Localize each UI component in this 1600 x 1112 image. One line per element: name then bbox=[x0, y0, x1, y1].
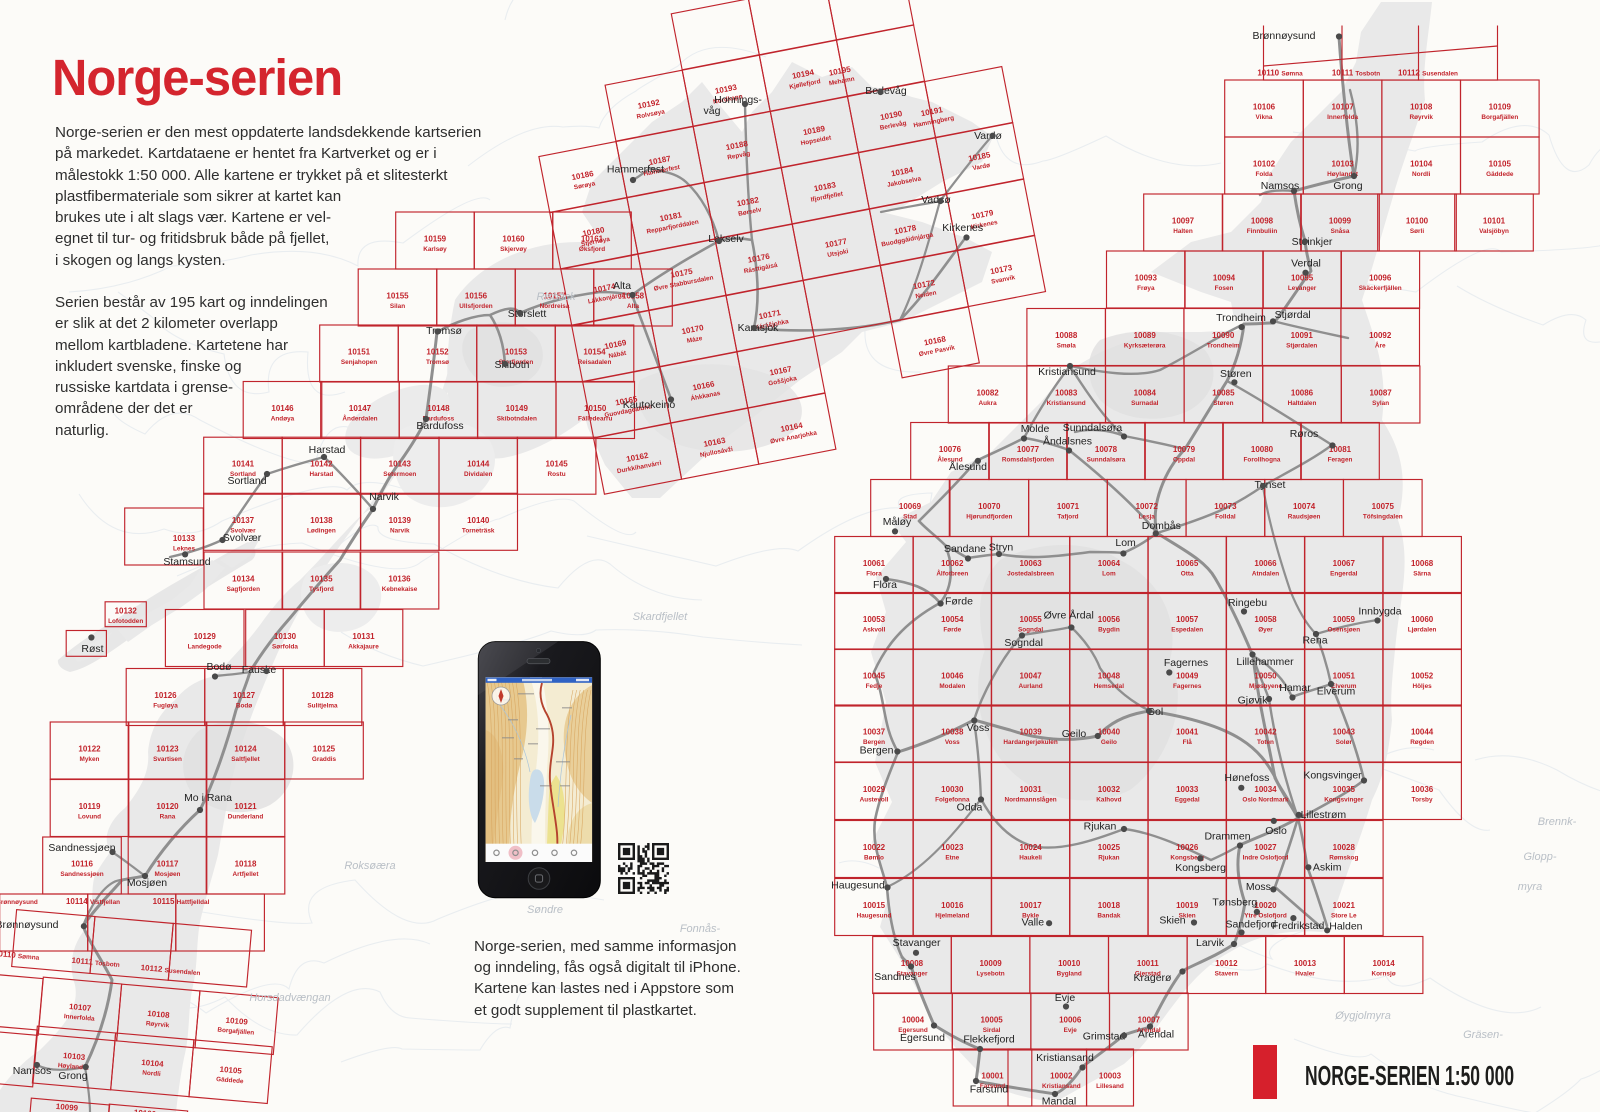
svg-text:Tynset: Tynset bbox=[1255, 479, 1286, 491]
svg-text:Stamsund: Stamsund bbox=[163, 556, 210, 568]
svg-text:10001: 10001 bbox=[981, 1072, 1004, 1081]
svg-text:Myken: Myken bbox=[80, 756, 100, 763]
svg-text:Rana: Rana bbox=[160, 814, 176, 821]
svg-text:10056: 10056 bbox=[1098, 615, 1121, 624]
svg-text:10111 Tosbotn: 10111 Tosbotn bbox=[1332, 69, 1380, 78]
svg-text:10133: 10133 bbox=[173, 534, 196, 543]
svg-text:10067: 10067 bbox=[1333, 559, 1356, 568]
svg-text:10130: 10130 bbox=[274, 632, 297, 641]
svg-text:10078: 10078 bbox=[1095, 445, 1118, 454]
svg-text:10105: 10105 bbox=[1489, 160, 1512, 169]
svg-text:Sørli: Sørli bbox=[1410, 228, 1424, 235]
svg-text:10118: 10118 bbox=[235, 860, 257, 869]
svg-text:Store Le: Store Le bbox=[1331, 913, 1357, 920]
svg-text:Lovund: Lovund bbox=[78, 814, 101, 821]
svg-text:Evje: Evje bbox=[1064, 1027, 1078, 1034]
svg-text:10040: 10040 bbox=[1098, 728, 1121, 737]
svg-text:Glopp-: Glopp- bbox=[1523, 851, 1556, 863]
svg-text:Flå: Flå bbox=[1183, 738, 1193, 746]
svg-text:10090: 10090 bbox=[1212, 331, 1235, 340]
svg-text:10120: 10120 bbox=[156, 802, 179, 811]
svg-text:Åre: Åre bbox=[1375, 341, 1386, 350]
svg-text:Fonnås-: Fonnås- bbox=[680, 923, 721, 935]
svg-text:10154: 10154 bbox=[583, 348, 606, 357]
svg-text:10069: 10069 bbox=[899, 502, 922, 511]
svg-text:10012: 10012 bbox=[1215, 959, 1238, 968]
svg-text:Jostedalsbreen: Jostedalsbreen bbox=[1007, 571, 1054, 578]
svg-text:10134: 10134 bbox=[232, 575, 255, 584]
svg-text:Innerfolda: Innerfolda bbox=[1327, 114, 1358, 121]
svg-text:Etne: Etne bbox=[945, 855, 959, 862]
svg-text:10099: 10099 bbox=[1329, 217, 1352, 226]
svg-text:Kirkenes: Kirkenes bbox=[942, 222, 983, 234]
svg-text:Skardfjellet: Skardfjellet bbox=[633, 611, 688, 623]
svg-text:Svolvær: Svolvær bbox=[223, 532, 262, 544]
svg-text:Molde: Molde bbox=[1021, 423, 1050, 435]
svg-text:Sogndal: Sogndal bbox=[1004, 637, 1043, 649]
svg-text:Farsund: Farsund bbox=[970, 1084, 1009, 1096]
svg-text:Søndre: Søndre bbox=[527, 904, 563, 916]
svg-text:10094: 10094 bbox=[1213, 274, 1236, 283]
svg-text:Fedje: Fedje bbox=[866, 683, 883, 690]
svg-text:Smøla: Smøla bbox=[1057, 343, 1077, 350]
svg-text:Larvik: Larvik bbox=[1196, 937, 1225, 949]
svg-text:10004: 10004 bbox=[902, 1016, 925, 1025]
svg-text:10156: 10156 bbox=[465, 292, 488, 301]
svg-text:Lom: Lom bbox=[1102, 571, 1116, 578]
svg-text:10132: 10132 bbox=[115, 607, 138, 616]
svg-text:10062: 10062 bbox=[941, 559, 964, 568]
svg-text:10007: 10007 bbox=[1138, 1016, 1161, 1025]
svg-text:10095: 10095 bbox=[1291, 274, 1314, 283]
svg-text:Askim: Askim bbox=[1313, 862, 1342, 874]
svg-text:Mo i Rana: Mo i Rana bbox=[184, 792, 232, 804]
svg-text:10083: 10083 bbox=[1055, 389, 1078, 398]
svg-text:Indre Oslofjord: Indre Oslofjord bbox=[1243, 855, 1289, 862]
svg-text:10060: 10060 bbox=[1411, 615, 1434, 624]
svg-text:Egersund: Egersund bbox=[900, 1032, 945, 1044]
svg-text:Mandal: Mandal bbox=[1042, 1096, 1076, 1108]
svg-text:Nordmannslågen: Nordmannslågen bbox=[1004, 796, 1056, 804]
svg-text:Grimstad: Grimstad bbox=[1083, 1031, 1126, 1043]
svg-text:10093: 10093 bbox=[1135, 274, 1158, 283]
svg-text:10131: 10131 bbox=[352, 632, 375, 641]
svg-text:10082: 10082 bbox=[976, 389, 999, 398]
svg-text:10127: 10127 bbox=[233, 691, 256, 700]
svg-text:Voss: Voss bbox=[945, 739, 960, 746]
svg-text:Hvaler: Hvaler bbox=[1295, 971, 1315, 978]
svg-text:10144: 10144 bbox=[467, 460, 490, 469]
svg-text:Førde: Førde bbox=[945, 596, 973, 608]
svg-text:10091: 10091 bbox=[1291, 331, 1314, 340]
svg-text:10006: 10006 bbox=[1059, 1016, 1082, 1025]
svg-text:Fugløya: Fugløya bbox=[153, 703, 178, 710]
svg-text:Sylan: Sylan bbox=[1372, 400, 1389, 407]
svg-text:10110 Sømna: 10110 Sømna bbox=[1257, 69, 1303, 78]
svg-text:Kristiansand: Kristiansand bbox=[1042, 1083, 1081, 1090]
svg-text:Sulitjelma: Sulitjelma bbox=[307, 703, 338, 710]
svg-text:Gräsen-: Gräsen- bbox=[1463, 1029, 1503, 1041]
svg-text:Hardangerjøkulen: Hardangerjøkulen bbox=[1003, 739, 1057, 746]
svg-text:10013: 10013 bbox=[1294, 959, 1317, 968]
svg-text:Surnadal: Surnadal bbox=[1131, 400, 1159, 407]
svg-text:10017: 10017 bbox=[1019, 901, 1042, 910]
svg-text:Gjøvik: Gjøvik bbox=[1238, 695, 1268, 707]
svg-text:Toten: Toten bbox=[1257, 739, 1274, 746]
svg-text:Ljørdalen: Ljørdalen bbox=[1408, 627, 1437, 634]
svg-text:10018: 10018 bbox=[1098, 901, 1121, 910]
svg-text:Austevoll: Austevoll bbox=[860, 797, 889, 804]
svg-text:Kristiansund: Kristiansund bbox=[1047, 400, 1086, 407]
svg-text:10102: 10102 bbox=[1253, 160, 1276, 169]
svg-text:Trondheim: Trondheim bbox=[1216, 312, 1266, 324]
svg-text:Sandnessjøen: Sandnessjøen bbox=[60, 871, 103, 878]
svg-text:10149: 10149 bbox=[506, 404, 529, 413]
svg-text:10059: 10059 bbox=[1333, 615, 1356, 624]
svg-text:Folldal: Folldal bbox=[1215, 514, 1236, 521]
svg-text:Mjøsbyene: Mjøsbyene bbox=[1249, 683, 1282, 690]
svg-text:Steinkjer: Steinkjer bbox=[1292, 236, 1333, 248]
svg-text:Storslett: Storslett bbox=[508, 308, 547, 320]
svg-text:Bygdin: Bygdin bbox=[1098, 627, 1120, 634]
svg-text:Sunndalsøra: Sunndalsøra bbox=[1063, 422, 1123, 434]
svg-text:Harstad: Harstad bbox=[309, 444, 346, 456]
svg-text:Hammerfest: Hammerfest bbox=[607, 164, 664, 176]
svg-text:Fagernes: Fagernes bbox=[1173, 683, 1202, 690]
svg-text:10015: 10015 bbox=[863, 901, 886, 910]
svg-text:Brennk-: Brennk- bbox=[1538, 816, 1577, 828]
svg-text:10124: 10124 bbox=[234, 745, 257, 754]
svg-text:10103: 10103 bbox=[1331, 160, 1354, 169]
svg-text:Odda: Odda bbox=[957, 802, 983, 814]
svg-text:Dombås: Dombås bbox=[1142, 520, 1181, 532]
svg-text:10109: 10109 bbox=[225, 1016, 248, 1027]
svg-text:Flekkefjord: Flekkefjord bbox=[963, 1034, 1015, 1046]
svg-text:10047: 10047 bbox=[1019, 672, 1042, 681]
svg-text:Fosen: Fosen bbox=[1215, 285, 1234, 292]
svg-text:Fauske: Fauske bbox=[242, 664, 277, 676]
svg-text:10053: 10053 bbox=[863, 615, 886, 624]
svg-text:10135: 10135 bbox=[310, 575, 333, 584]
svg-text:Otta: Otta bbox=[1181, 571, 1194, 578]
svg-text:10115 Hattfjelldal: 10115 Hattfjelldal bbox=[153, 897, 210, 906]
svg-text:Ringebu: Ringebu bbox=[1228, 597, 1267, 609]
svg-text:10121: 10121 bbox=[234, 802, 257, 811]
svg-text:10023: 10023 bbox=[941, 843, 964, 852]
svg-text:Haltdalen: Haltdalen bbox=[1288, 400, 1317, 407]
svg-text:Oppdal: Oppdal bbox=[1173, 457, 1195, 464]
svg-text:10141: 10141 bbox=[232, 460, 255, 469]
svg-text:Grong: Grong bbox=[1333, 180, 1362, 192]
svg-text:Landegode: Landegode bbox=[188, 644, 223, 651]
svg-text:Bygland: Bygland bbox=[1057, 971, 1082, 978]
svg-text:Stavanger: Stavanger bbox=[893, 937, 941, 949]
svg-text:Rømskog: Rømskog bbox=[1329, 855, 1358, 862]
svg-text:10038: 10038 bbox=[941, 728, 964, 737]
svg-text:Bømlo: Bømlo bbox=[864, 855, 884, 862]
svg-text:10048: 10048 bbox=[1098, 672, 1121, 681]
svg-text:Fagernes: Fagernes bbox=[1164, 657, 1208, 669]
svg-text:Silan: Silan bbox=[390, 303, 405, 310]
svg-text:10071: 10071 bbox=[1057, 502, 1080, 511]
svg-text:Kongsvinger: Kongsvinger bbox=[1303, 770, 1362, 782]
svg-text:10052: 10052 bbox=[1411, 672, 1434, 681]
svg-text:10041: 10041 bbox=[1176, 728, 1199, 737]
svg-text:10136: 10136 bbox=[388, 575, 411, 584]
svg-text:Engerdal: Engerdal bbox=[1330, 571, 1358, 578]
svg-text:Ålesund: Ålesund bbox=[949, 460, 987, 473]
svg-text:10099: 10099 bbox=[55, 1102, 78, 1112]
svg-text:Stjørdalen: Stjørdalen bbox=[1286, 343, 1317, 350]
svg-text:Borgafjällen: Borgafjällen bbox=[1481, 114, 1518, 121]
svg-text:10064: 10064 bbox=[1098, 559, 1121, 568]
svg-text:Rjukan: Rjukan bbox=[1084, 821, 1117, 833]
svg-text:10049: 10049 bbox=[1176, 672, 1199, 681]
svg-text:10074: 10074 bbox=[1293, 502, 1316, 511]
svg-text:Tysfjord: Tysfjord bbox=[309, 586, 334, 593]
svg-text:Vardø: Vardø bbox=[974, 130, 1002, 142]
svg-text:10050: 10050 bbox=[1254, 672, 1277, 681]
svg-text:Romsdalsfjorden: Romsdalsfjorden bbox=[1002, 457, 1054, 464]
svg-text:Drammen: Drammen bbox=[1204, 831, 1250, 843]
svg-text:Bergen: Bergen bbox=[860, 745, 894, 757]
svg-text:10073: 10073 bbox=[1214, 502, 1237, 511]
svg-text:Flora: Flora bbox=[866, 571, 882, 578]
svg-text:Skibotn: Skibotn bbox=[494, 359, 529, 371]
svg-text:Risbäck: Risbäck bbox=[536, 291, 576, 303]
svg-text:Ånderdalen: Ånderdalen bbox=[342, 414, 377, 423]
svg-text:Geilo: Geilo bbox=[1062, 728, 1087, 740]
svg-text:Honnings-: Honnings- bbox=[714, 94, 762, 106]
svg-text:Elverum: Elverum bbox=[1317, 686, 1356, 698]
svg-text:10014: 10014 bbox=[1372, 959, 1395, 968]
svg-text:10016: 10016 bbox=[941, 901, 964, 910]
svg-text:Borgafjällen: Borgafjällen bbox=[217, 1027, 254, 1037]
svg-text:Lødingen: Lødingen bbox=[307, 527, 336, 534]
svg-text:10068: 10068 bbox=[1411, 559, 1434, 568]
svg-text:10028: 10028 bbox=[1333, 843, 1356, 852]
svg-text:Rjukan: Rjukan bbox=[1098, 855, 1119, 862]
svg-text:Røros: Røros bbox=[1290, 428, 1319, 440]
svg-text:10101: 10101 bbox=[1483, 217, 1506, 226]
svg-text:10072: 10072 bbox=[1136, 502, 1159, 511]
svg-text:10143: 10143 bbox=[389, 460, 412, 469]
svg-text:10058: 10058 bbox=[1254, 615, 1277, 624]
svg-text:10129: 10129 bbox=[194, 632, 217, 641]
svg-text:Valsjöbyn: Valsjöbyn bbox=[1479, 228, 1509, 235]
svg-text:Øygjolmyra: Øygjolmyra bbox=[1334, 1010, 1391, 1022]
svg-text:10153: 10153 bbox=[505, 348, 528, 357]
svg-text:Haugesund: Haugesund bbox=[857, 913, 892, 920]
svg-text:myra: myra bbox=[1518, 881, 1542, 893]
svg-text:10076: 10076 bbox=[939, 445, 962, 454]
svg-text:Feragen: Feragen bbox=[1328, 457, 1353, 464]
svg-text:Torneträsk: Torneträsk bbox=[462, 527, 495, 534]
svg-text:Finnbuliin: Finnbuliin bbox=[1247, 228, 1278, 235]
svg-text:Levanger: Levanger bbox=[1288, 285, 1317, 292]
svg-text:Kyrksæterøra: Kyrksæterøra bbox=[1124, 343, 1166, 350]
svg-text:10051: 10051 bbox=[1333, 672, 1356, 681]
svg-text:10126: 10126 bbox=[154, 691, 177, 700]
svg-text:10096: 10096 bbox=[1369, 274, 1392, 283]
svg-text:Forollhogna: Forollhogna bbox=[1244, 457, 1281, 464]
svg-text:10084: 10084 bbox=[1134, 389, 1157, 398]
svg-text:Åndalsnes: Åndalsnes bbox=[1043, 435, 1092, 448]
svg-text:10122: 10122 bbox=[78, 745, 101, 754]
svg-text:Kongsberg: Kongsberg bbox=[1175, 862, 1226, 874]
svg-text:Kalhovd: Kalhovd bbox=[1096, 797, 1121, 804]
svg-text:Narvik: Narvik bbox=[390, 527, 410, 534]
svg-text:10077: 10077 bbox=[1017, 445, 1040, 454]
svg-text:Svartisen: Svartisen bbox=[153, 756, 182, 763]
svg-text:Røst: Røst bbox=[81, 643, 103, 655]
svg-text:Trondheim: Trondheim bbox=[1207, 343, 1240, 350]
svg-text:10030: 10030 bbox=[941, 785, 964, 794]
svg-text:10054: 10054 bbox=[941, 615, 964, 624]
svg-text:10137: 10137 bbox=[232, 516, 255, 525]
svg-text:Stavern: Stavern bbox=[1215, 971, 1239, 978]
svg-text:10026: 10026 bbox=[1176, 843, 1199, 852]
svg-text:10152: 10152 bbox=[426, 348, 449, 357]
svg-text:Haugesund: Haugesund bbox=[831, 880, 885, 892]
svg-text:10034: 10034 bbox=[1254, 785, 1277, 794]
svg-text:10065: 10065 bbox=[1176, 559, 1199, 568]
svg-text:10045: 10045 bbox=[863, 672, 886, 681]
svg-text:Solør: Solør bbox=[1336, 739, 1353, 746]
svg-text:10113 Brønnøysund: 10113 Brønnøysund bbox=[0, 897, 38, 906]
svg-text:10140: 10140 bbox=[467, 516, 490, 525]
svg-text:Tafjord: Tafjord bbox=[1057, 514, 1078, 521]
svg-text:Røyrvik: Røyrvik bbox=[1409, 114, 1433, 121]
svg-text:Aukra: Aukra bbox=[979, 400, 998, 407]
svg-text:10027: 10027 bbox=[1254, 843, 1277, 852]
svg-text:Modalen: Modalen bbox=[939, 683, 965, 690]
svg-text:Støren: Støren bbox=[1220, 368, 1252, 380]
svg-text:Graddis: Graddis bbox=[312, 756, 337, 763]
svg-text:10105: 10105 bbox=[219, 1065, 242, 1076]
svg-text:Töfsingdalen: Töfsingdalen bbox=[1363, 514, 1403, 521]
svg-text:10043: 10043 bbox=[1333, 728, 1356, 737]
svg-text:10114 Vistfjellan: 10114 Vistfjellan bbox=[66, 897, 120, 906]
svg-text:10100: 10100 bbox=[1406, 217, 1429, 226]
svg-text:Lillehammer: Lillehammer bbox=[1236, 656, 1294, 668]
svg-text:10031: 10031 bbox=[1019, 785, 1042, 794]
svg-text:10092: 10092 bbox=[1369, 331, 1392, 340]
svg-text:10055: 10055 bbox=[1019, 615, 1042, 624]
svg-text:Frøya: Frøya bbox=[1137, 285, 1155, 292]
svg-text:Nordli: Nordli bbox=[1412, 171, 1431, 178]
svg-text:Reisadalen: Reisadalen bbox=[578, 359, 612, 366]
svg-text:10108: 10108 bbox=[1410, 103, 1433, 112]
svg-text:10087: 10087 bbox=[1369, 389, 1392, 398]
svg-text:Lillestrøm: Lillestrøm bbox=[1301, 809, 1347, 821]
svg-text:10109: 10109 bbox=[1489, 103, 1512, 112]
svg-text:Kongsvinger: Kongsvinger bbox=[1324, 797, 1364, 804]
svg-text:10119: 10119 bbox=[79, 802, 101, 811]
svg-text:Sunndalsøra: Sunndalsøra bbox=[1087, 457, 1126, 464]
svg-text:Haukeli: Haukeli bbox=[1019, 855, 1042, 862]
svg-text:Førde: Førde bbox=[943, 627, 961, 634]
svg-text:10160: 10160 bbox=[502, 235, 525, 244]
svg-text:Vikna: Vikna bbox=[1256, 114, 1273, 121]
svg-text:Kragerø: Kragerø bbox=[1134, 972, 1173, 984]
svg-text:10089: 10089 bbox=[1134, 331, 1157, 340]
svg-text:Skibotndalen: Skibotndalen bbox=[497, 416, 537, 423]
svg-text:10155: 10155 bbox=[386, 292, 409, 301]
svg-text:10002: 10002 bbox=[1050, 1072, 1073, 1081]
svg-text:Gäddede: Gäddede bbox=[216, 1076, 244, 1085]
svg-text:10142: 10142 bbox=[310, 460, 333, 469]
svg-text:Ålfotbreen: Ålfotbreen bbox=[936, 569, 968, 578]
svg-text:Lom: Lom bbox=[1115, 537, 1136, 549]
svg-text:Tønsberg: Tønsberg bbox=[1212, 897, 1257, 909]
svg-text:Lillesand: Lillesand bbox=[1096, 1083, 1124, 1090]
svg-text:Rostu: Rostu bbox=[548, 471, 566, 478]
svg-text:Geilo: Geilo bbox=[1101, 739, 1117, 746]
svg-text:10019: 10019 bbox=[1176, 901, 1199, 910]
svg-text:Hjørundfjorden: Hjørundfjorden bbox=[966, 514, 1012, 521]
svg-text:Oslo: Oslo bbox=[1265, 825, 1287, 837]
svg-text:Halten: Halten bbox=[1173, 228, 1193, 235]
svg-text:Folda: Folda bbox=[1255, 171, 1272, 178]
svg-text:10057: 10057 bbox=[1176, 615, 1199, 624]
svg-text:10086: 10086 bbox=[1291, 389, 1314, 398]
svg-text:Øvre Årdal: Øvre Årdal bbox=[1044, 609, 1094, 622]
svg-text:10106: 10106 bbox=[1253, 103, 1276, 112]
svg-text:Innbygda: Innbygda bbox=[1358, 606, 1401, 618]
svg-text:10036: 10036 bbox=[1411, 785, 1434, 794]
svg-text:Osensjøen: Osensjøen bbox=[1327, 627, 1360, 634]
svg-text:10097: 10097 bbox=[1172, 217, 1195, 226]
svg-text:10003: 10003 bbox=[1099, 1072, 1122, 1081]
svg-text:10151: 10151 bbox=[348, 348, 371, 357]
svg-text:Tromsø: Tromsø bbox=[426, 325, 462, 337]
svg-text:10070: 10070 bbox=[978, 502, 1001, 511]
svg-text:10061: 10061 bbox=[863, 559, 886, 568]
svg-text:Stjørdal: Stjørdal bbox=[1275, 309, 1311, 321]
svg-text:Valle: Valle bbox=[1022, 917, 1045, 929]
svg-text:10148: 10148 bbox=[427, 404, 450, 413]
svg-text:Sagfjorden: Sagfjorden bbox=[227, 586, 260, 593]
svg-text:Hemsedal: Hemsedal bbox=[1094, 683, 1124, 690]
svg-text:10080: 10080 bbox=[1251, 445, 1274, 454]
svg-text:Tromsø: Tromsø bbox=[426, 359, 449, 366]
svg-text:10025: 10025 bbox=[1098, 843, 1121, 852]
svg-text:Brønnøysund: Brønnøysund bbox=[0, 919, 59, 931]
svg-text:Artfjellet: Artfjellet bbox=[233, 871, 260, 878]
svg-text:Aurland: Aurland bbox=[1019, 683, 1043, 690]
svg-text:10128: 10128 bbox=[311, 691, 334, 700]
svg-text:Arendal: Arendal bbox=[1138, 1029, 1174, 1041]
svg-text:Kristiansund: Kristiansund bbox=[1038, 366, 1096, 378]
svg-text:Øyer: Øyer bbox=[1258, 627, 1273, 634]
svg-text:Halden: Halden bbox=[1329, 921, 1362, 933]
svg-text:Namsos: Namsos bbox=[13, 1065, 52, 1077]
svg-text:Kornsjø: Kornsjø bbox=[1372, 971, 1396, 978]
svg-text:10147: 10147 bbox=[349, 404, 372, 413]
svg-text:Sandnessjøen: Sandnessjøen bbox=[48, 842, 115, 854]
svg-text:10011: 10011 bbox=[1137, 959, 1159, 968]
svg-text:Lofotodden: Lofotodden bbox=[108, 618, 143, 625]
svg-text:Roksøæra: Roksøæra bbox=[344, 860, 395, 872]
svg-text:10138: 10138 bbox=[310, 516, 333, 525]
svg-text:10020: 10020 bbox=[1254, 901, 1277, 910]
svg-text:Sandnes: Sandnes bbox=[874, 971, 915, 983]
svg-text:10085: 10085 bbox=[1212, 389, 1235, 398]
svg-text:Horsdadvængan: Horsdadvængan bbox=[249, 992, 330, 1004]
svg-text:Kautokeino: Kautokeino bbox=[623, 399, 676, 411]
svg-text:Fredrikstad: Fredrikstad bbox=[1272, 920, 1325, 932]
